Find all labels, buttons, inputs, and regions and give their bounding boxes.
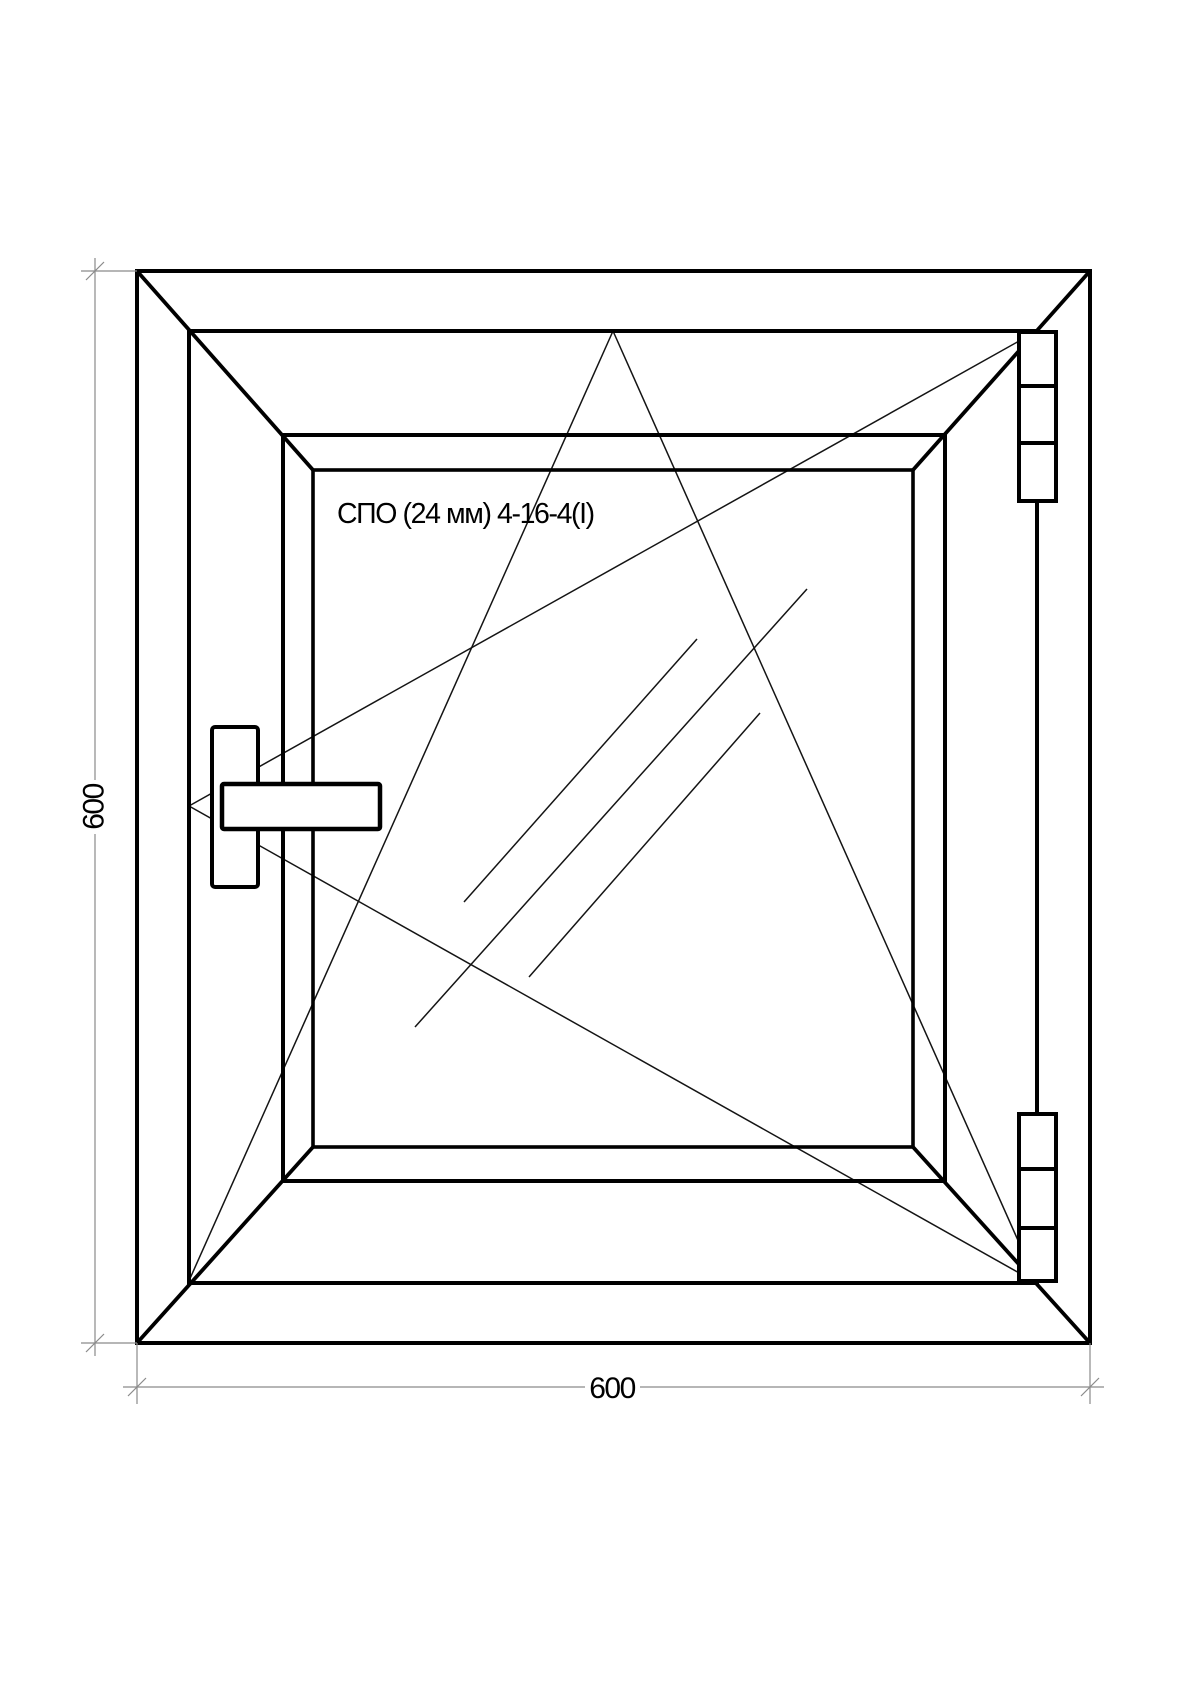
svg-text:СПО (24 мм) 4-16-4(I): СПО (24 мм) 4-16-4(I) [337, 498, 594, 530]
svg-text:600: 600 [589, 1372, 635, 1405]
svg-text:600: 600 [78, 783, 111, 829]
